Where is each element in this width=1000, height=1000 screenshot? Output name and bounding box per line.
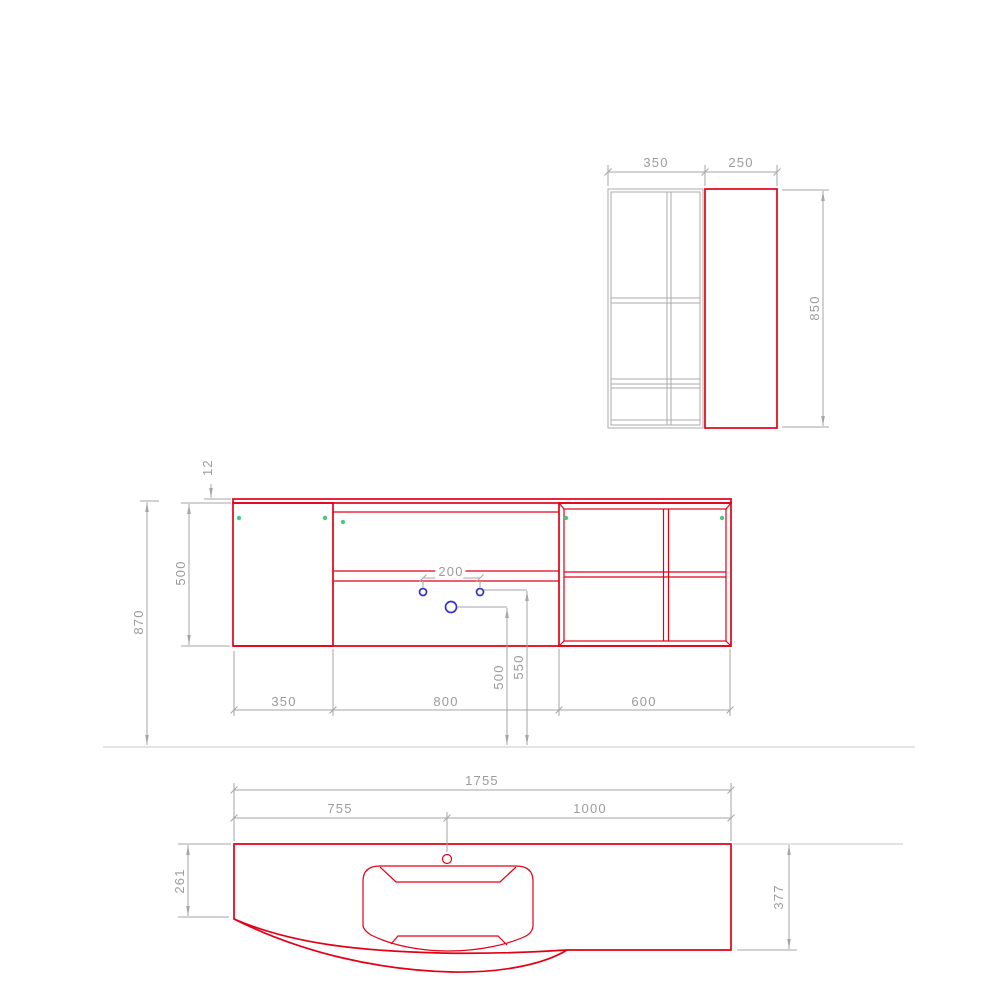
technical-drawing-page: 350 250 850 bbox=[0, 0, 1000, 1000]
tap-hole bbox=[443, 855, 452, 864]
dim-supply-height: 550 bbox=[511, 654, 526, 679]
vanity-door bbox=[233, 503, 333, 646]
side-cabinet-body bbox=[608, 189, 703, 428]
dim-side-width-panel: 250 bbox=[728, 155, 753, 170]
side-view: 350 250 850 bbox=[605, 155, 830, 428]
dim-top-thickness: 12 bbox=[200, 459, 215, 476]
vanity-technical-drawing: 350 250 850 bbox=[0, 0, 1000, 1000]
dim-drain-height: 500 bbox=[491, 664, 506, 689]
hinge-dot bbox=[323, 516, 327, 520]
hinge-dot bbox=[564, 516, 568, 520]
sink-back-deck-edge bbox=[380, 867, 516, 882]
drain-outlet-hole bbox=[446, 602, 457, 613]
sink-basin-rim bbox=[363, 866, 533, 951]
plan-view: 1755 755 1000 261 377 bbox=[172, 773, 903, 972]
dim-plan-total-width: 1755 bbox=[465, 773, 499, 788]
countertop-outline bbox=[234, 844, 731, 953]
hinge-dot bbox=[237, 516, 241, 520]
water-supply-hole-right bbox=[477, 589, 484, 596]
hinge-dot bbox=[720, 516, 724, 520]
side-cabinet-inner bbox=[611, 192, 700, 425]
vanity-right-frame bbox=[559, 503, 731, 646]
side-panel bbox=[705, 189, 777, 428]
dim-section-middle: 800 bbox=[433, 694, 458, 709]
sink-floor-edge bbox=[391, 936, 507, 945]
dim-tap-spacing: 200 bbox=[438, 564, 463, 579]
water-supply-hole-left bbox=[420, 589, 427, 596]
dim-left-to-tap: 755 bbox=[327, 801, 352, 816]
dim-section-left: 350 bbox=[271, 694, 296, 709]
dim-side-width-main: 350 bbox=[643, 155, 668, 170]
dim-right-depth: 377 bbox=[771, 884, 786, 909]
dim-total-height: 870 bbox=[131, 609, 146, 634]
dim-tap-to-right: 1000 bbox=[573, 801, 607, 816]
vanity-right-frame-inner bbox=[564, 509, 726, 641]
front-view: 200 12 500 870 350 800 600 500 550 bbox=[131, 459, 734, 745]
dim-side-height: 850 bbox=[807, 295, 822, 320]
dim-left-depth: 261 bbox=[172, 868, 187, 893]
dim-section-right: 600 bbox=[631, 694, 656, 709]
hinge-dot bbox=[341, 520, 345, 524]
dim-body-height: 500 bbox=[173, 560, 188, 585]
